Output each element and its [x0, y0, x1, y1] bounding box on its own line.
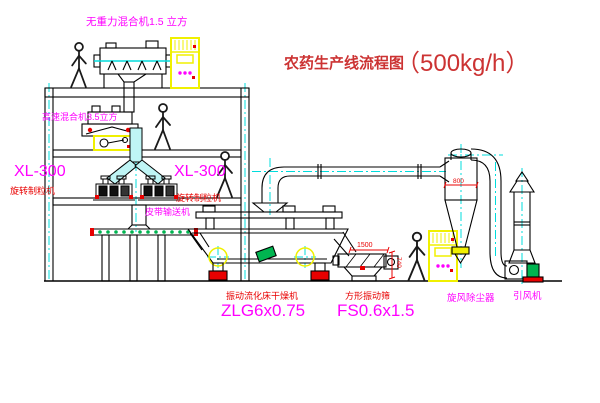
- label-screen-name: 方形振动筛: [345, 290, 390, 301]
- process-flow-drawing: 农药生产线流程图 （500kg/h） 无重力混合机1.5 立方 高速混合机3.5…: [0, 0, 600, 403]
- dim-screen-height: 740: [395, 257, 402, 268]
- worker-ground: [409, 233, 425, 280]
- cad-canvas: 农药生产线流程图 （500kg/h） 无重力混合机1.5 立方 高速混合机3.5…: [0, 0, 600, 403]
- title-capacity: （500kg/h）: [396, 50, 529, 77]
- conveyor-rollers: [98, 230, 190, 234]
- title-text: 农药生产线流程图: [283, 54, 404, 72]
- worker-roof: [71, 43, 86, 87]
- label-high-speed-mixer: 高速混合机3.5立方: [42, 111, 118, 122]
- worker-floor2: [155, 104, 170, 149]
- label-granulator-left-name: 旋转制粒机: [10, 185, 55, 196]
- label-dryer-name: 振动流化床干燥机: [226, 290, 298, 301]
- label-dryer-model: ZLG6x0.75: [221, 301, 305, 320]
- label-gravity-free-mixer: 无重力混合机1.5 立方: [86, 15, 188, 28]
- label-granulator-right-model: XL-300: [174, 163, 226, 180]
- dim-cyclone: 800: [453, 178, 464, 185]
- vibrating-screen: [333, 247, 398, 281]
- belt-conveyor: [90, 228, 198, 281]
- label-cyclone: 旋风除尘器: [447, 292, 495, 304]
- label-screen-model: FS0.6x1.5: [337, 301, 415, 320]
- control-cabinet-ground: [429, 231, 457, 281]
- control-cabinet-top: [171, 38, 199, 88]
- dim-screen-length: 1500: [357, 242, 373, 249]
- gravity-free-mixer: [94, 41, 174, 112]
- label-belt-conveyor: 皮带输送机: [145, 206, 190, 217]
- label-granulator-left-model: XL-300: [14, 163, 66, 180]
- exhaust-duct: [262, 161, 449, 203]
- induced-draft-fan: [505, 261, 543, 282]
- label-fan: 引风机: [513, 290, 542, 302]
- label-granulator-right-name: 旋转制粒机: [176, 192, 221, 203]
- outlet-duct: [471, 149, 507, 278]
- fluid-bed-dryer: [188, 203, 356, 280]
